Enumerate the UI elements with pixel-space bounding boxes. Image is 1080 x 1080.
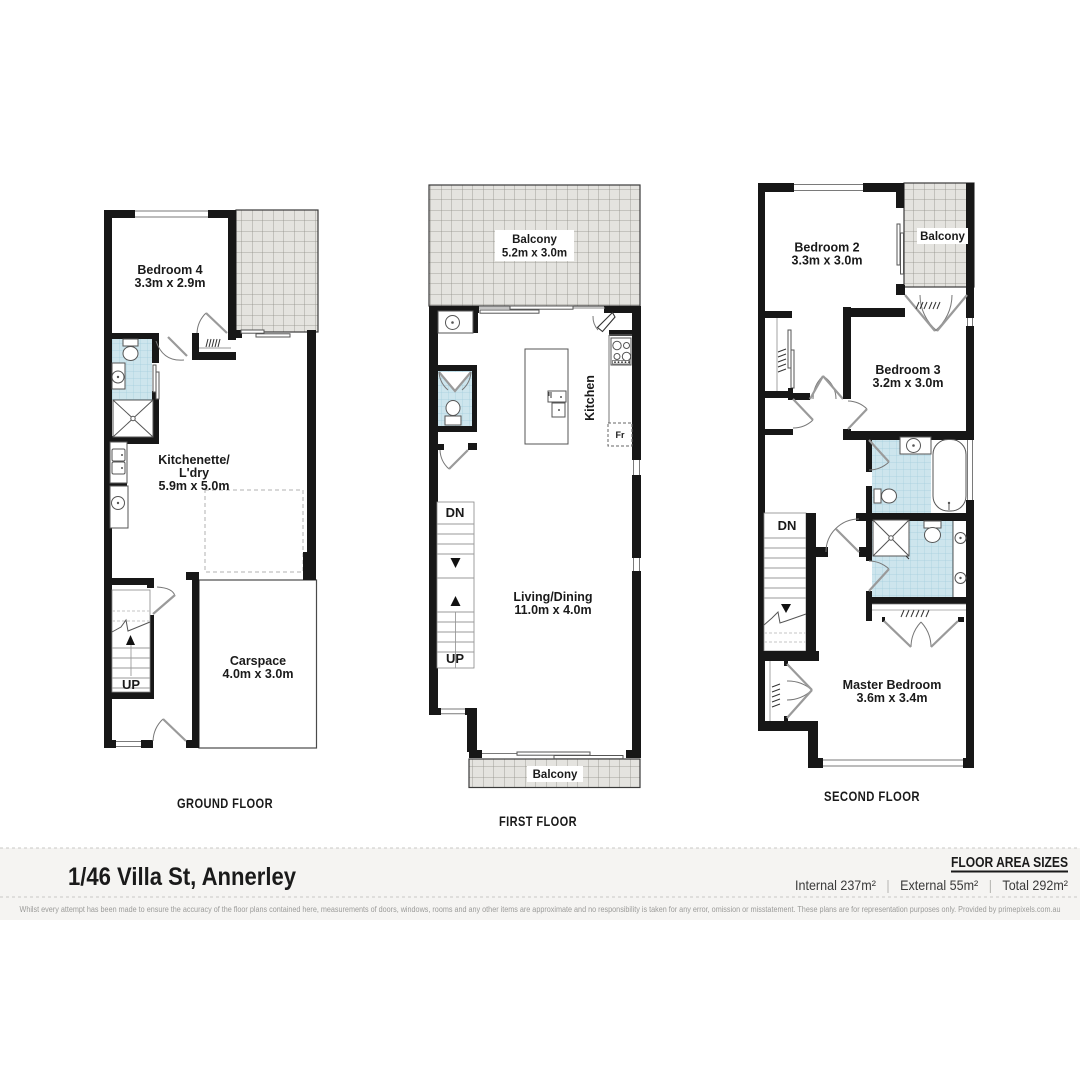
- svg-text:Master Bedroom: Master Bedroom: [843, 678, 942, 692]
- svg-text:Carspace: Carspace: [230, 654, 286, 668]
- svg-text:DN: DN: [446, 505, 465, 520]
- svg-text:Internal 237m² | External: Internal 237m² | External 55m² | Total 2…: [795, 877, 1068, 893]
- svg-text:FLOOR AREA SIZES: FLOOR AREA SIZES: [951, 855, 1068, 871]
- svg-text:Balcony: Balcony: [920, 231, 965, 243]
- svg-text:Kitchen: Kitchen: [583, 375, 597, 421]
- svg-text:Bedroom 3: Bedroom 3: [875, 363, 940, 377]
- svg-text:5.9m x 5.0m: 5.9m x 5.0m: [159, 479, 230, 493]
- svg-text:GROUND FLOOR: GROUND FLOOR: [177, 795, 273, 811]
- svg-text:Living/Dining: Living/Dining: [513, 590, 592, 604]
- svg-text:Kitchenette/: Kitchenette/: [158, 453, 230, 467]
- svg-text:Fr: Fr: [616, 430, 625, 440]
- svg-text:3.2m x 3.0m: 3.2m x 3.0m: [873, 376, 944, 390]
- svg-text:5.2m x 3.0m: 5.2m x 3.0m: [502, 248, 567, 260]
- svg-text:1/46 Villa St, Annerley: 1/46 Villa St, Annerley: [68, 863, 296, 891]
- svg-text:L'dry: L'dry: [179, 466, 209, 480]
- svg-text:UP: UP: [446, 651, 464, 666]
- svg-text:Balcony: Balcony: [512, 234, 557, 246]
- svg-text:DN: DN: [778, 518, 797, 533]
- svg-text:3.3m x 3.0m: 3.3m x 3.0m: [792, 254, 863, 268]
- svg-text:Balcony: Balcony: [533, 769, 578, 781]
- svg-text:FIRST FLOOR: FIRST FLOOR: [499, 813, 577, 829]
- svg-text:Bedroom 4: Bedroom 4: [137, 263, 202, 277]
- svg-text:Bedroom 2: Bedroom 2: [794, 241, 859, 255]
- svg-text:SECOND FLOOR: SECOND FLOOR: [824, 788, 920, 804]
- svg-text:3.3m x 2.9m: 3.3m x 2.9m: [135, 276, 206, 290]
- svg-text:Whilst every attempt has been: Whilst every attempt has been made to en…: [20, 905, 1061, 914]
- svg-text:4.0m x 3.0m: 4.0m x 3.0m: [223, 667, 294, 681]
- svg-text:UP: UP: [122, 677, 140, 692]
- svg-text:11.0m x 4.0m: 11.0m x 4.0m: [514, 603, 591, 617]
- svg-text:3.6m x 3.4m: 3.6m x 3.4m: [857, 691, 928, 705]
